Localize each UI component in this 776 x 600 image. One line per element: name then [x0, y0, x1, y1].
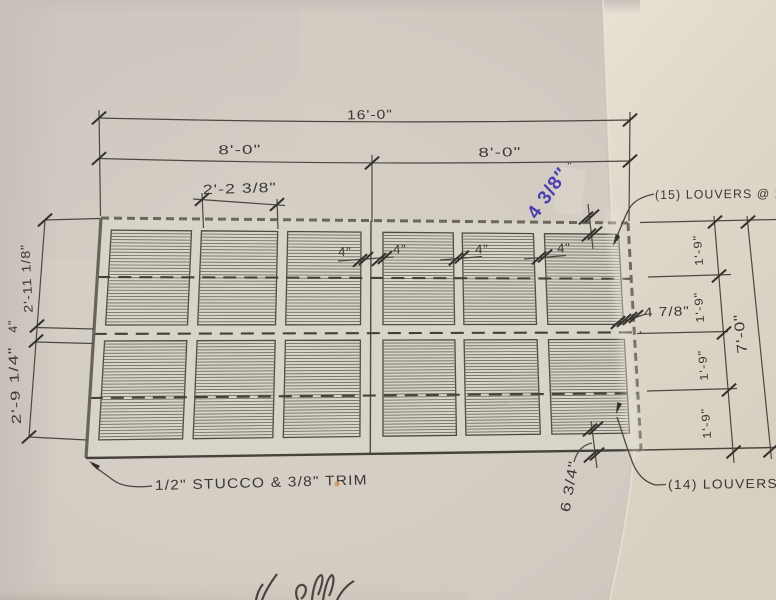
- svg-text:(15) LOUVERS @ 2: (15) LOUVERS @ 2: [655, 187, 776, 202]
- svg-text:4": 4": [557, 240, 571, 255]
- svg-text:(14) LOUVERS: (14) LOUVERS: [668, 476, 776, 492]
- svg-text:4": 4": [338, 244, 352, 259]
- svg-text:4": 4": [393, 241, 407, 256]
- svg-text:4": 4": [475, 241, 489, 256]
- svg-text:2'-2 3/8": 2'-2 3/8": [203, 180, 277, 198]
- svg-text:8'-0": 8'-0": [478, 144, 521, 160]
- svg-text:1'-9": 1'-9": [693, 291, 707, 323]
- svg-text:4": 4": [6, 319, 21, 333]
- svg-text:1'-9": 1'-9": [700, 407, 714, 439]
- svg-text:1'-9": 1'-9": [692, 234, 706, 266]
- svg-text:1'-9": 1'-9": [697, 349, 711, 381]
- svg-text:4 7/8": 4 7/8": [644, 303, 690, 320]
- svg-text:8'-0": 8'-0": [218, 142, 261, 158]
- svg-text:16'-0": 16'-0": [347, 107, 393, 123]
